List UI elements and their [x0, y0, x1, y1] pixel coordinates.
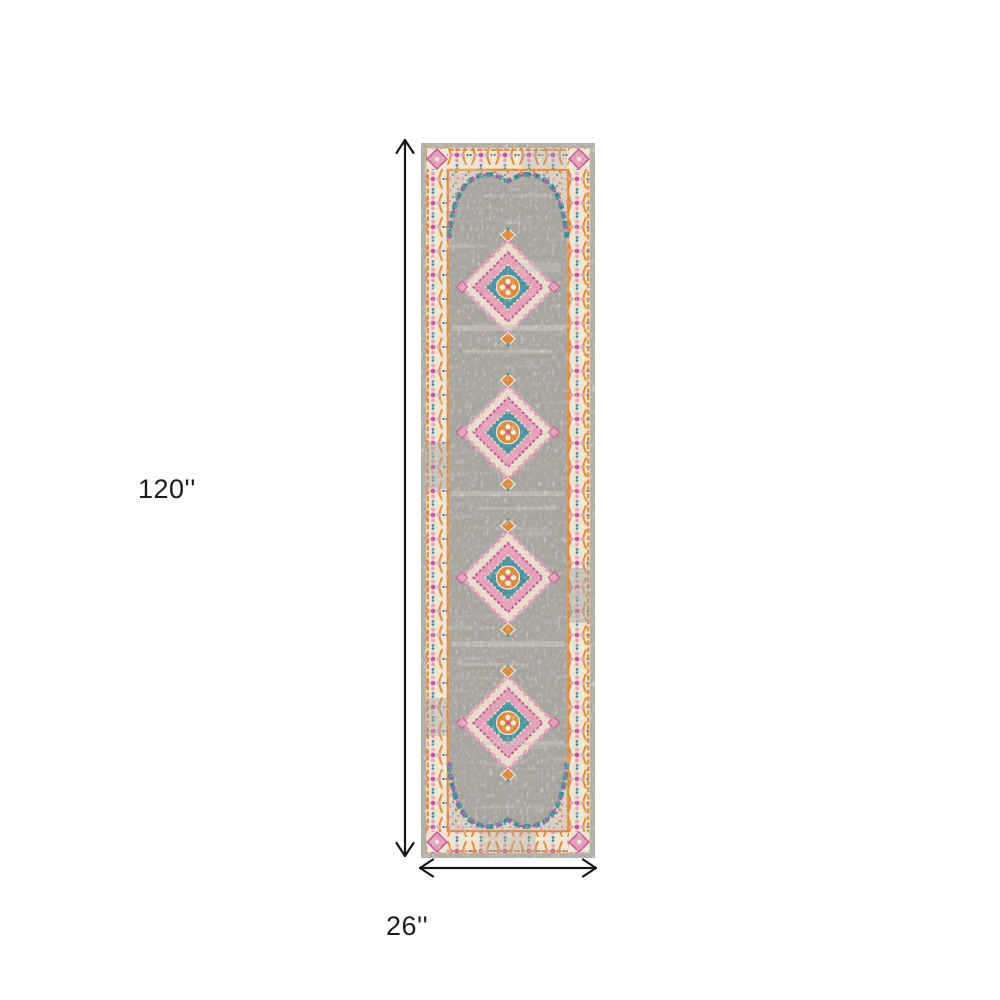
rug-graphic	[421, 143, 595, 858]
height-dimension-label: 120''	[138, 474, 196, 505]
rug-product-image	[421, 143, 595, 858]
height-dimension-arrow	[391, 133, 419, 863]
width-dimension-label: 26''	[386, 911, 428, 942]
width-dimension-arrow	[412, 856, 604, 880]
product-dimension-figure: 120'' 26''	[0, 0, 1000, 1000]
